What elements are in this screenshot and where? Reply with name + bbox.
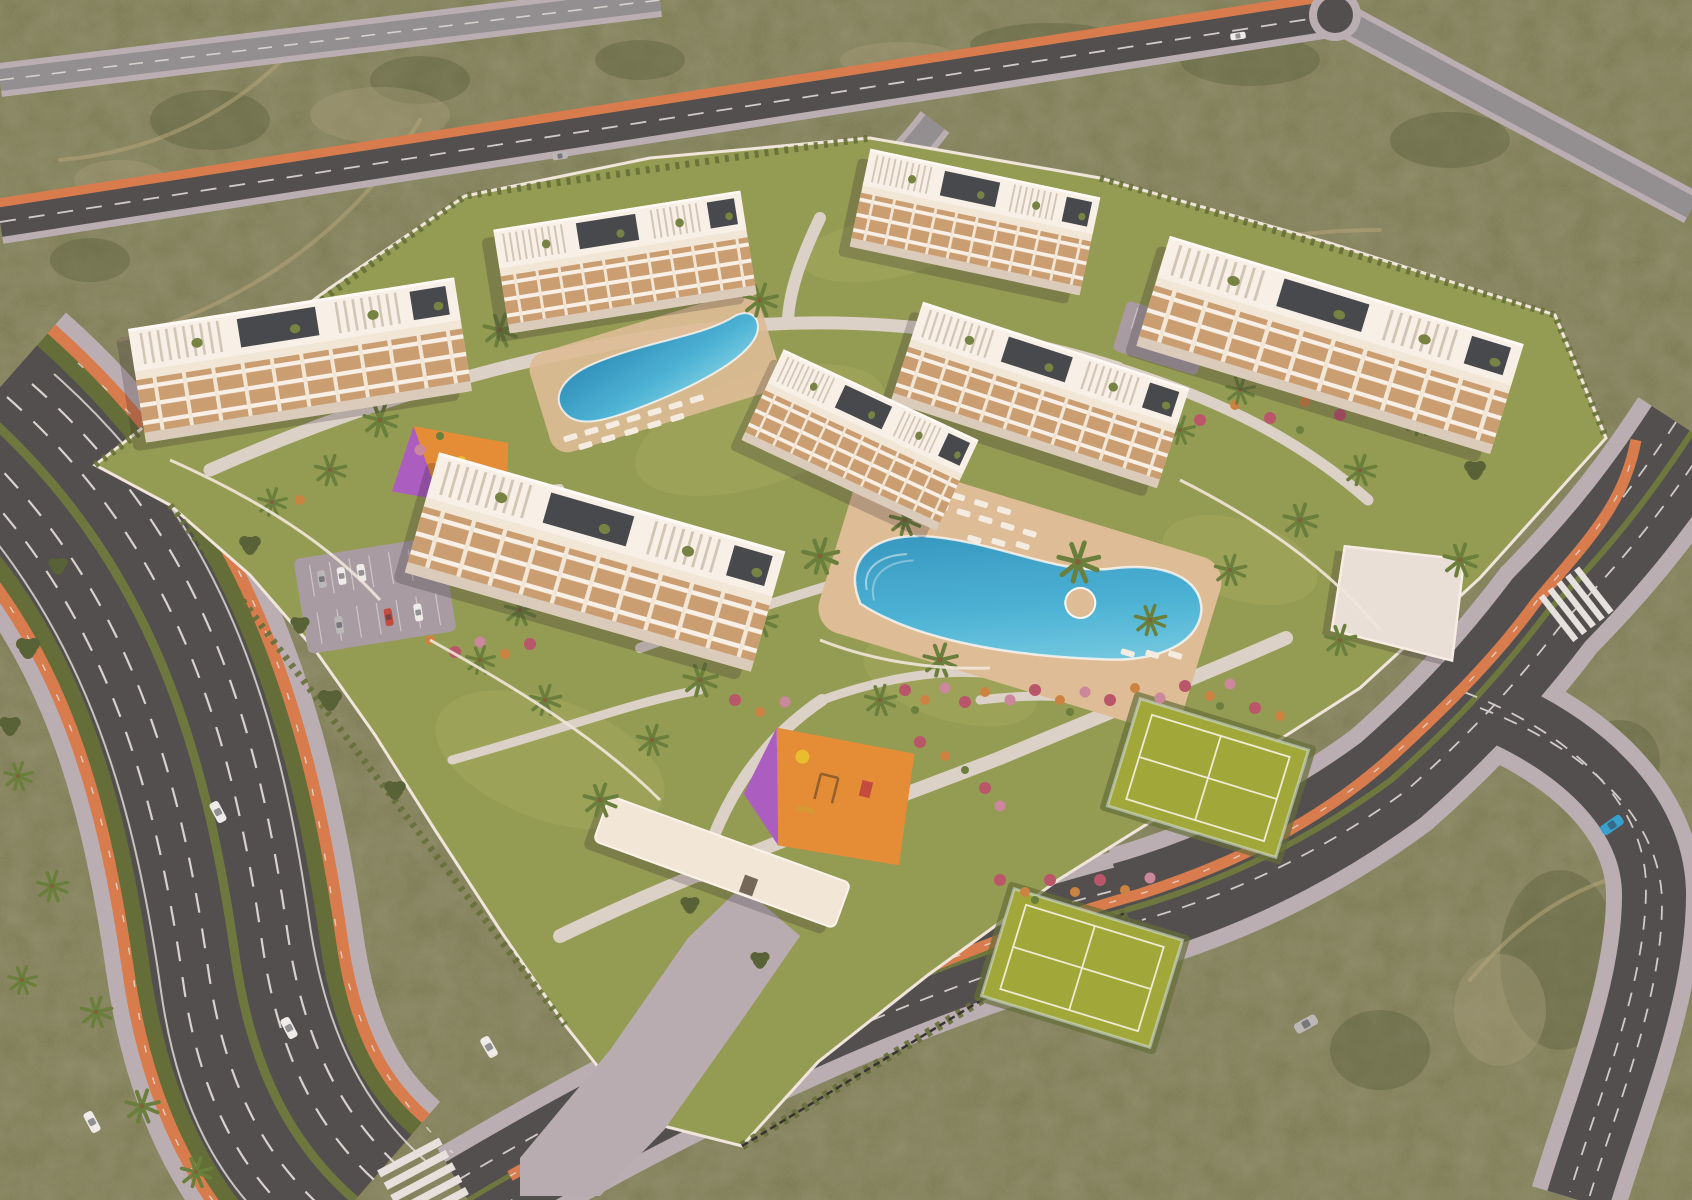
warm-light-overlay [0,0,1692,1200]
aerial-render [0,0,1692,1200]
